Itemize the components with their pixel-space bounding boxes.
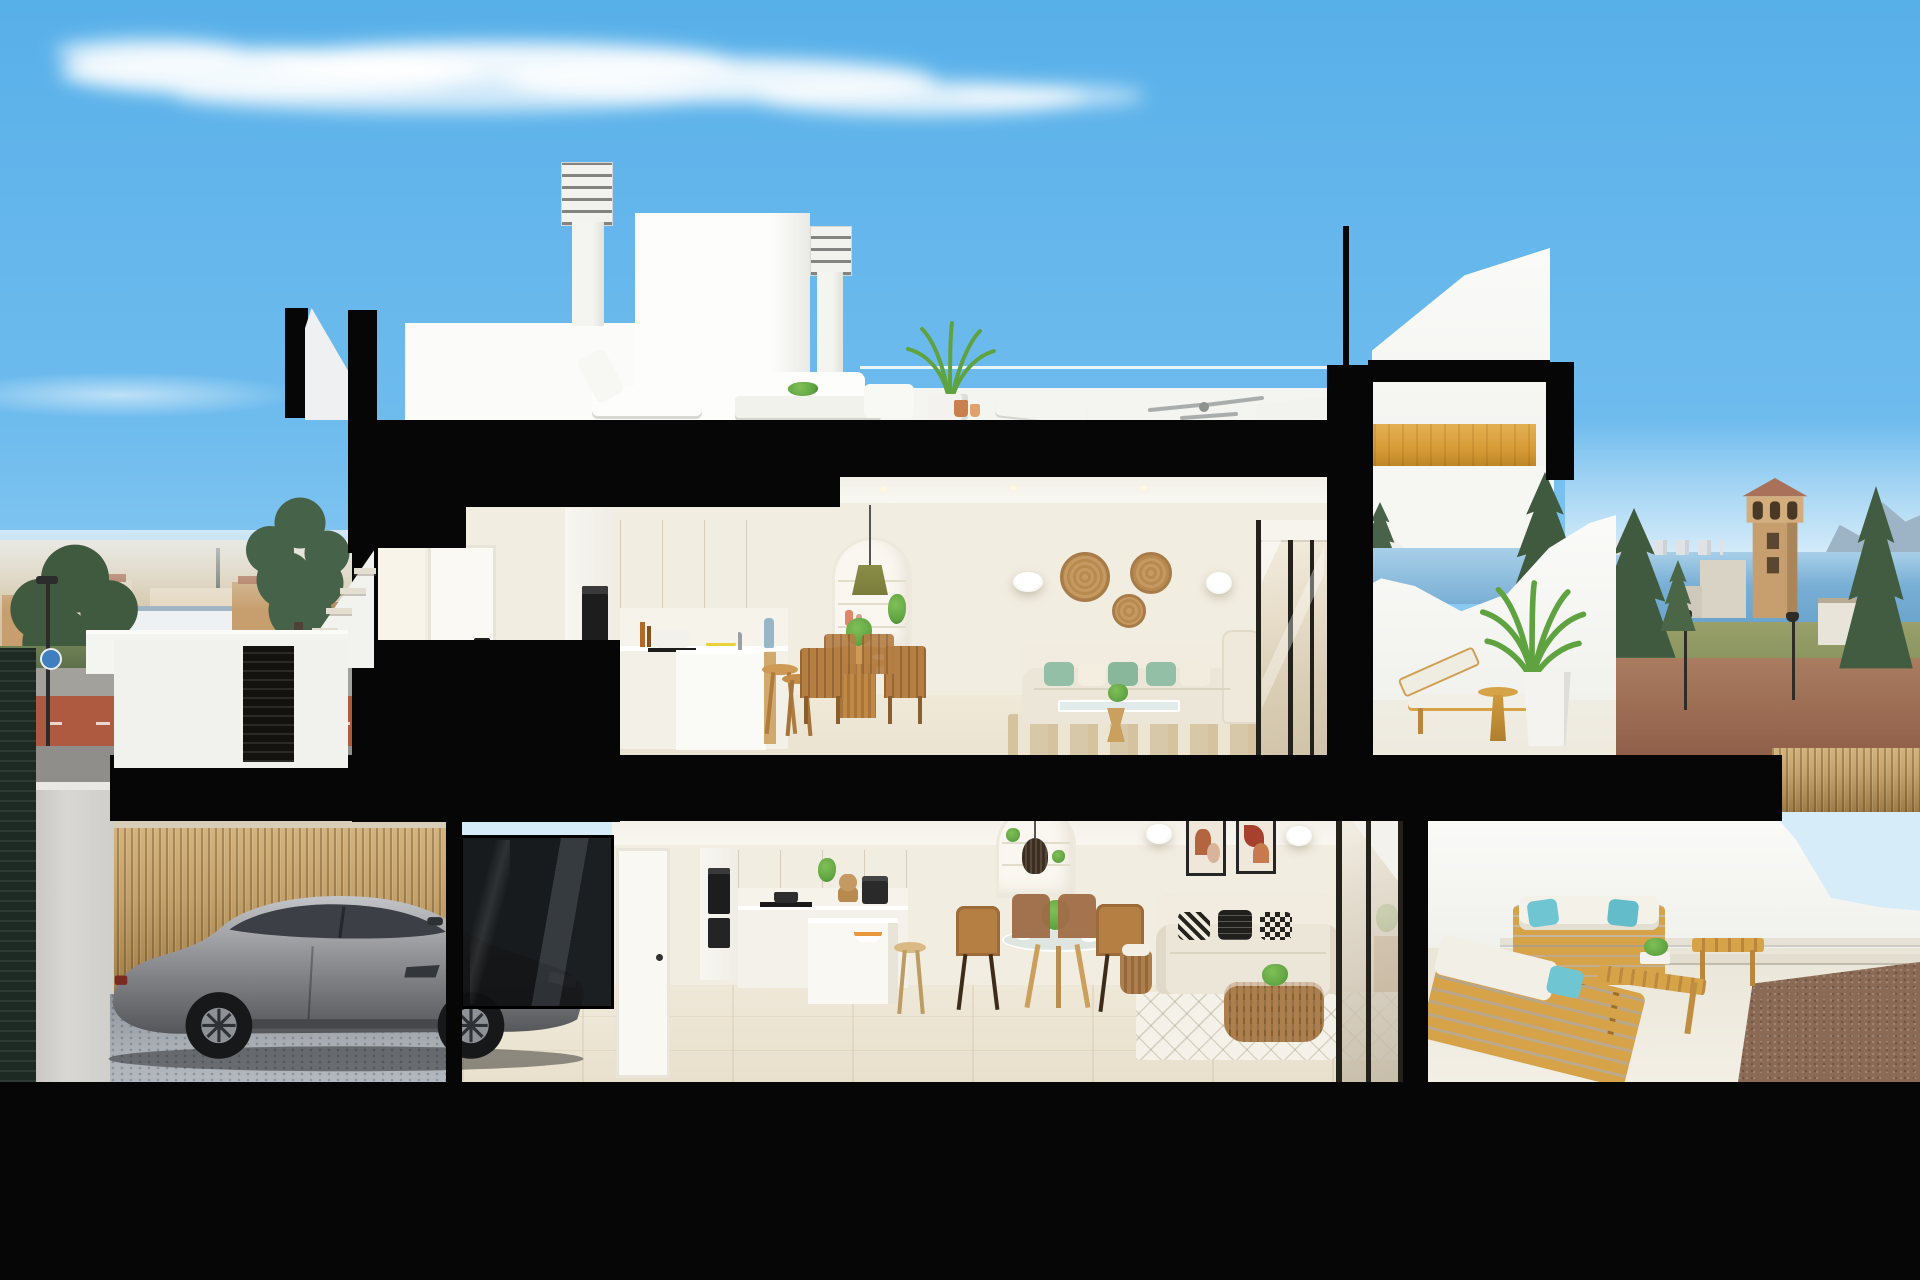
chimney-shaft [572,222,604,326]
rattan-pendant-lantern [1022,838,1048,874]
bg-building-right [1700,560,1746,618]
conifer-tree [1830,486,1920,676]
dining-chair-leg [918,696,922,724]
sofa-pillow-green [1044,662,1074,686]
sofa-lower [1156,894,1340,994]
dining-chair-leg [804,696,808,724]
wall-sconce [1013,572,1043,592]
rattan-wall-plate [1060,552,1110,602]
door-knob [656,954,663,961]
street-lantern [1792,620,1795,700]
art-shape [1253,843,1269,863]
glass-table-leg [1056,946,1061,1008]
stair-tread [326,608,352,614]
sofa-seat-seam [1170,952,1326,954]
chimney-louver-cap [810,226,852,276]
pillow-black [1218,910,1252,940]
wall-sconce [1146,824,1172,844]
oil-bottle [640,622,645,647]
sliding-door-frame [1256,520,1261,757]
conifer-small [1656,560,1700,634]
kitchen-faucet [738,632,742,650]
basket-blanket [1122,944,1150,956]
upper-ceiling-strip [840,477,1328,505]
glass-partition-reflection [470,840,510,1004]
potted-areca-palm [1468,574,1596,686]
blue-vase [764,618,774,648]
rattan-wall-plate [1112,594,1146,628]
cut-entry-void [352,640,620,822]
coffee-table-legs [1066,708,1166,742]
palm-pot [1520,672,1574,746]
glass-railing-edge [1343,226,1349,366]
dining-chair [862,634,894,674]
rattan-wall-plate [1130,552,1172,594]
fruit-bowl-lemons [706,643,736,652]
framed-abstract-art [1236,816,1276,874]
terracotta-pot [970,404,980,417]
ceiling-spotlight [1010,486,1017,490]
sliding-door-frame [1366,805,1371,1083]
outdoor-bench-leg [1750,950,1755,986]
roof-corner-wedge [305,308,352,420]
pendant-cord [869,505,871,567]
kitchen-wood-cabinets [620,520,788,608]
brown-dining-chair [956,906,1000,956]
sofa-pillow-cream [1078,664,1106,686]
ceiling-spotlight [1140,486,1147,490]
pillow-zigzag [1178,912,1210,940]
street-lamp-head [36,576,58,584]
cooking-pot [654,630,690,648]
built-in-oven [708,868,730,914]
black-pot [774,892,798,903]
upper-terrace-floor [1358,700,1616,757]
teal-outdoor-pillow [1526,898,1559,928]
kitchen-island [676,650,766,750]
interior-door-lower [616,848,670,1078]
stair-tread [340,588,366,594]
wall-sconce [1206,572,1232,594]
brown-dining-chair [1058,894,1096,938]
sliding-door-blind-box [1256,520,1327,542]
cut-wall-right-lower [1403,755,1428,1085]
entry-wall [114,640,348,768]
cut-ground-slab [0,1082,1920,1280]
louvered-gate [243,646,294,762]
cut-roof-slab-kitchen [374,420,840,507]
rattan-basket-table [1224,982,1324,1042]
built-in-oven [708,918,730,948]
dining-chair-leg [888,696,892,724]
kitchen2-peninsula [808,918,898,1004]
dining-chair [824,634,856,674]
render-canvas [0,0,1920,1280]
cut-wall-left [348,310,377,553]
sliding-door-frame [1336,805,1342,1083]
cut-wall-right-upper [1327,365,1373,759]
brown-dining-chair [1012,894,1050,938]
chimney-louver-cap [561,162,613,226]
cut-band-stairs [1368,360,1550,382]
bamboo-fence-right [1772,748,1920,812]
sofa-pillow-cream [1180,660,1210,686]
oil-bottle [647,626,651,647]
art-shape [1207,843,1220,863]
dining-chair-leg [836,696,840,724]
wall-sconce [1286,826,1312,846]
pillow-check [1260,912,1292,940]
side-basket [1120,950,1152,994]
rattan-decor [838,874,858,902]
sliding-door-reflection [1262,540,1324,757]
dark-slat-panel-left [0,648,36,1082]
kitchen-backsplash [620,608,788,648]
cloud [20,0,1200,170]
bar-stool [894,942,926,953]
stair-tread [354,568,376,574]
ceiling-spotlight [880,487,887,491]
round-traffic-sign [40,648,62,670]
terracotta-pot [954,400,968,417]
framed-abstract-art [1186,818,1226,876]
teal-outdoor-pillow [1607,899,1640,928]
sofa-seat-seam [1034,688,1230,690]
built-in-oven [582,586,608,646]
cut-post-stairs [1546,362,1574,480]
watchtower [1742,476,1808,618]
cut-parapet-fin [285,308,308,418]
sofa-pillow-green [1146,662,1176,686]
coffee-machine [862,876,888,904]
cloud-wisp [0,372,300,418]
golden-wood-staircase [1360,424,1536,472]
roof-sofa-seat [735,396,881,418]
sun-lounger-leg [1418,708,1423,734]
sofa-pillow-green [1108,662,1138,686]
cut-roof-slab-living [840,420,1328,477]
